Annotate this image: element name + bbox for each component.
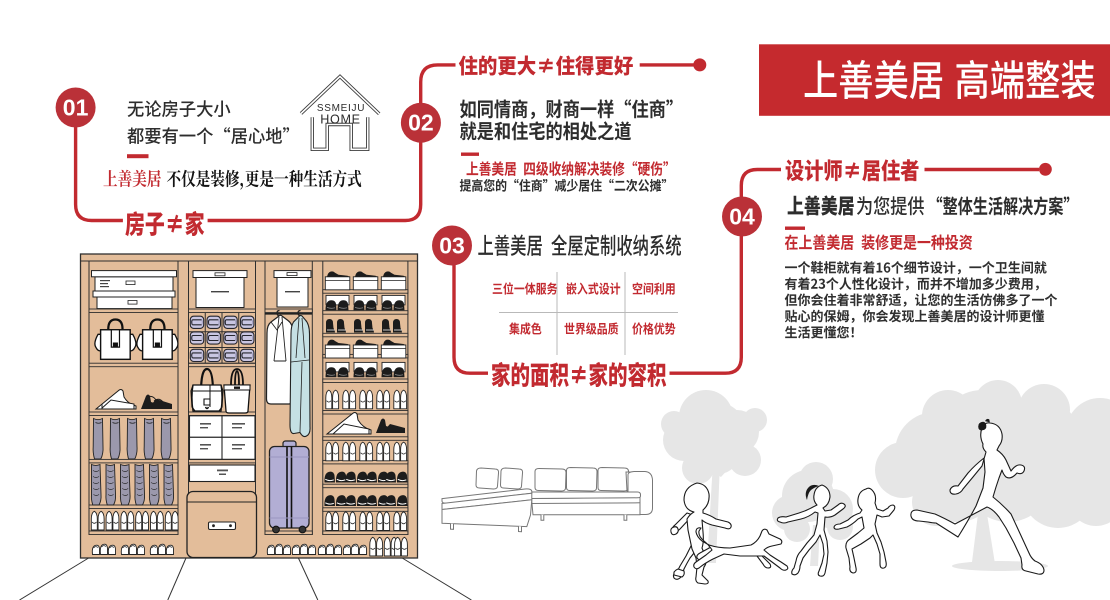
svg-text:04: 04 [729, 204, 755, 230]
svg-text:03: 03 [439, 233, 465, 259]
svg-text:02: 02 [408, 110, 434, 136]
svg-text:01: 01 [63, 95, 89, 121]
svg-text:HOME: HOME [320, 113, 361, 127]
